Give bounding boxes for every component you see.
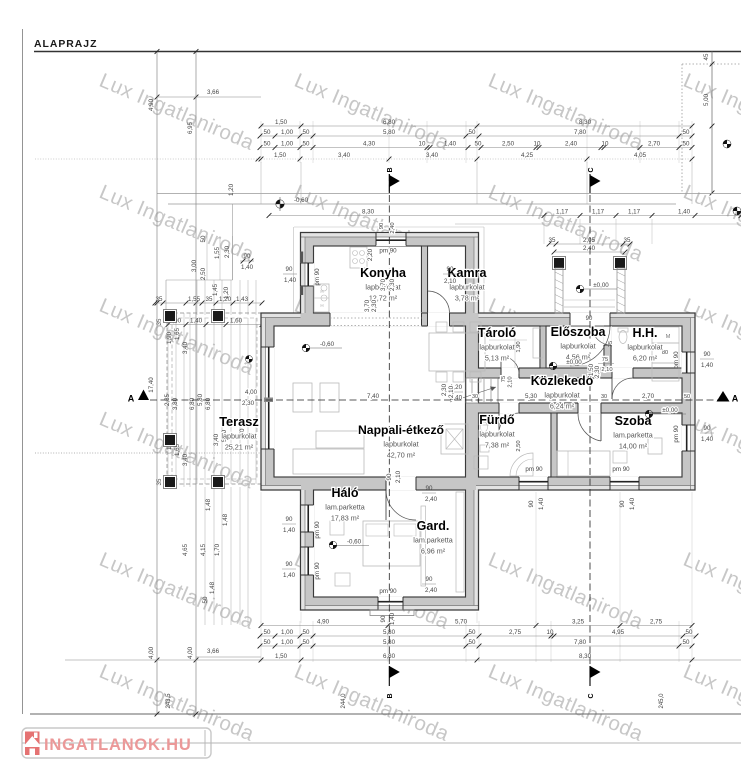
svg-text:50: 50 (683, 141, 690, 148)
svg-text:4,25: 4,25 (521, 152, 534, 159)
svg-text:3,66: 3,66 (207, 648, 220, 655)
svg-text:M: M (666, 334, 671, 340)
svg-text:2,10: 2,10 (601, 367, 612, 373)
svg-text:90: 90 (704, 351, 711, 358)
svg-text:2,75: 2,75 (650, 619, 663, 626)
svg-text:Gard.: Gard. (417, 519, 450, 533)
svg-text:2,40: 2,40 (425, 496, 438, 503)
svg-text:1,17: 1,17 (628, 209, 641, 216)
svg-text:2,30: 2,30 (389, 278, 396, 291)
svg-text:50: 50 (303, 629, 310, 636)
svg-text:50: 50 (684, 394, 690, 400)
svg-text:Előszoba: Előszoba (551, 325, 607, 339)
svg-text:1,50: 1,50 (275, 119, 288, 126)
svg-text:6,95: 6,95 (187, 121, 194, 134)
svg-text:35: 35 (156, 296, 163, 303)
svg-text:pm 90: pm 90 (379, 588, 397, 595)
svg-text:50: 50 (683, 129, 690, 136)
svg-text:-0,60: -0,60 (347, 539, 362, 546)
svg-text:5,80: 5,80 (383, 129, 396, 136)
svg-text:±0,00: ±0,00 (593, 282, 609, 289)
svg-text:1,40: 1,40 (701, 436, 714, 443)
svg-text:lapburkolat: lapburkolat (479, 343, 514, 352)
svg-text:3,66: 3,66 (207, 89, 220, 96)
svg-text:1,40: 1,40 (629, 497, 636, 510)
svg-text:7,80: 7,80 (574, 639, 587, 646)
svg-text:1,40: 1,40 (444, 141, 457, 148)
svg-text:50: 50 (303, 141, 310, 148)
svg-text:245,0: 245,0 (659, 693, 665, 709)
svg-text:±0,00: ±0,00 (566, 359, 582, 366)
svg-text:1,40: 1,40 (284, 277, 297, 284)
svg-text:INGATLANOK.HU: INGATLANOK.HU (44, 736, 192, 754)
svg-text:2,70: 2,70 (642, 393, 655, 400)
svg-text:90: 90 (619, 500, 626, 507)
svg-text:10: 10 (547, 629, 554, 636)
svg-text:Közlekedő: Közlekedő (531, 374, 594, 388)
svg-text:3,80: 3,80 (172, 397, 179, 410)
svg-text:50: 50 (264, 629, 271, 636)
svg-text:90: 90 (379, 223, 385, 229)
svg-text:42,70 m²: 42,70 m² (387, 451, 416, 460)
svg-text:75: 75 (602, 357, 608, 363)
svg-text:2,30: 2,30 (594, 365, 601, 378)
svg-text:Szoba: Szoba (615, 414, 653, 428)
svg-text:1,40: 1,40 (701, 362, 714, 369)
svg-text:35: 35 (156, 318, 163, 325)
svg-text:17,83 m²: 17,83 m² (331, 514, 360, 523)
svg-text:5,70: 5,70 (455, 619, 468, 626)
svg-text:3,78 m²: 3,78 m² (455, 294, 480, 303)
svg-text:pm 90: pm 90 (314, 268, 321, 286)
svg-text:6,80: 6,80 (189, 397, 196, 410)
svg-text:H: H (320, 303, 323, 308)
svg-text:2,30: 2,30 (242, 400, 255, 407)
svg-text:2,30: 2,30 (371, 299, 378, 312)
svg-text:2,40: 2,40 (390, 222, 396, 233)
svg-text:Fürdő: Fürdő (479, 413, 515, 427)
svg-text:90: 90 (286, 516, 293, 523)
svg-text:2,10: 2,10 (448, 385, 455, 398)
svg-text:90: 90 (286, 561, 293, 568)
svg-text:3,40: 3,40 (182, 453, 189, 466)
svg-text:90: 90 (380, 615, 387, 622)
svg-text:lapburkolat: lapburkolat (479, 430, 514, 439)
svg-text:17,40: 17,40 (148, 377, 155, 393)
svg-text:50: 50 (683, 639, 690, 646)
svg-text:H: H (320, 289, 323, 294)
svg-text:80: 80 (662, 350, 668, 356)
svg-text:B: B (387, 167, 394, 172)
svg-text:75: 75 (501, 376, 507, 382)
svg-text:7,40: 7,40 (367, 393, 380, 400)
svg-text:50: 50 (303, 639, 310, 646)
svg-text:1,40: 1,40 (678, 209, 691, 216)
svg-text:Terasz: Terasz (219, 414, 259, 429)
svg-text:1,40: 1,40 (389, 612, 396, 625)
svg-text:4,05: 4,05 (634, 152, 647, 159)
svg-text:25,21 m²: 25,21 m² (225, 443, 254, 452)
svg-text:50: 50 (469, 639, 476, 646)
svg-text:5,13 m²: 5,13 m² (485, 354, 510, 363)
svg-text:35: 35 (206, 296, 213, 303)
svg-text:2,10: 2,10 (508, 376, 514, 387)
svg-text:ALAPRAJZ: ALAPRAJZ (34, 39, 97, 50)
svg-text:50: 50 (202, 596, 209, 603)
svg-text:4,30: 4,30 (363, 141, 376, 148)
svg-text:30: 30 (472, 394, 478, 400)
svg-text:1,48: 1,48 (222, 513, 229, 526)
svg-text:-0,60: -0,60 (320, 341, 335, 348)
svg-text:Háló: Háló (331, 486, 358, 500)
svg-text:1,55: 1,55 (214, 246, 221, 259)
svg-text:2,10: 2,10 (444, 278, 457, 285)
svg-text:1,50: 1,50 (275, 653, 288, 660)
svg-text:50: 50 (200, 235, 207, 242)
svg-text:3,40: 3,40 (182, 341, 189, 354)
svg-text:90: 90 (447, 266, 454, 273)
svg-text:2,75: 2,75 (509, 629, 522, 636)
svg-text:1,00: 1,00 (281, 141, 294, 148)
svg-text:90: 90 (586, 316, 593, 322)
svg-text:3,40: 3,40 (426, 152, 439, 159)
svg-text:7,80: 7,80 (574, 129, 587, 136)
svg-text:45: 45 (703, 53, 710, 60)
svg-text:3,70: 3,70 (364, 299, 371, 312)
svg-text:C: C (588, 167, 595, 172)
svg-text:2,10: 2,10 (395, 470, 402, 483)
svg-text:Nappali-étkező: Nappali-étkező (358, 423, 444, 437)
svg-text:1,00: 1,00 (281, 629, 294, 636)
svg-text:4,65: 4,65 (182, 543, 189, 556)
svg-text:2,70: 2,70 (648, 141, 661, 148)
svg-text:90: 90 (286, 266, 293, 273)
svg-text:H.H.: H.H. (633, 326, 658, 340)
svg-text:50: 50 (264, 639, 271, 646)
svg-text:1,50: 1,50 (274, 152, 287, 159)
svg-text:8,30: 8,30 (579, 119, 592, 126)
svg-text:2,50: 2,50 (516, 440, 522, 451)
svg-text:1,48: 1,48 (205, 498, 212, 511)
svg-text:35: 35 (156, 478, 163, 485)
svg-text:lam.parketta: lam.parketta (613, 431, 653, 440)
svg-text:4,00: 4,00 (187, 646, 194, 659)
svg-text:2,30: 2,30 (224, 245, 231, 258)
svg-text:1,90: 1,90 (516, 341, 522, 352)
svg-text:pm 90: pm 90 (379, 248, 397, 255)
svg-text:35: 35 (624, 237, 631, 244)
svg-text:1,40: 1,40 (190, 318, 203, 325)
svg-text:10: 10 (534, 141, 541, 148)
svg-text:2,05: 2,05 (583, 237, 596, 244)
svg-text:90: 90 (386, 473, 393, 480)
svg-text:14,00 m²: 14,00 m² (619, 442, 648, 451)
svg-text:10: 10 (419, 141, 426, 148)
svg-text:pm 90: pm 90 (612, 466, 630, 473)
svg-text:3,40: 3,40 (213, 433, 220, 446)
svg-text:1,65: 1,65 (174, 327, 181, 340)
svg-text:-0,60: -0,60 (294, 197, 309, 204)
svg-text:1,17: 1,17 (556, 209, 569, 216)
svg-text:8,30: 8,30 (362, 209, 375, 216)
svg-text:4,95: 4,95 (612, 629, 625, 636)
svg-text:6,80: 6,80 (205, 397, 212, 410)
svg-text:B: B (387, 693, 394, 698)
svg-text:3,70: 3,70 (380, 278, 387, 291)
svg-text:pm 90: pm 90 (673, 425, 680, 443)
svg-text:1,20: 1,20 (223, 286, 230, 299)
svg-text:lam.parketta: lam.parketta (413, 536, 453, 545)
svg-text:2,40: 2,40 (583, 245, 596, 252)
svg-text:6,20 m²: 6,20 m² (633, 354, 658, 363)
svg-text:4,00: 4,00 (148, 646, 155, 659)
svg-text:1,00: 1,00 (281, 639, 294, 646)
svg-text:2,50: 2,50 (502, 141, 515, 148)
svg-text:75: 75 (608, 341, 614, 347)
svg-text:1,40: 1,40 (283, 572, 296, 579)
svg-text:4,90: 4,90 (148, 98, 155, 111)
svg-text:Konyha: Konyha (360, 266, 407, 280)
svg-text:1,70: 1,70 (214, 543, 221, 556)
svg-text:10: 10 (602, 141, 609, 148)
svg-text:4,00: 4,00 (245, 389, 258, 396)
svg-text:6,80: 6,80 (383, 119, 396, 126)
svg-text:4,15: 4,15 (200, 543, 207, 556)
svg-text:2,40: 2,40 (425, 587, 438, 594)
svg-text:3,25: 3,25 (572, 619, 585, 626)
svg-text:C: C (588, 693, 595, 698)
svg-text:90: 90 (244, 253, 251, 260)
svg-text:244,0: 244,0 (341, 693, 347, 709)
svg-text:1,60: 1,60 (230, 318, 243, 325)
svg-text:±0,00: ±0,00 (662, 407, 678, 414)
svg-text:50: 50 (686, 629, 693, 636)
svg-text:1,55: 1,55 (188, 296, 201, 303)
svg-text:Tároló: Tároló (478, 326, 517, 340)
svg-text:2,20: 2,20 (367, 248, 374, 261)
svg-text:2,40: 2,40 (565, 141, 578, 148)
svg-text:pm 90: pm 90 (525, 466, 543, 473)
svg-text:lapburkolat: lapburkolat (627, 343, 662, 352)
svg-text:50: 50 (475, 141, 482, 148)
svg-text:1,43: 1,43 (236, 296, 249, 303)
svg-text:2,50: 2,50 (200, 267, 207, 280)
svg-text:1,40: 1,40 (538, 497, 545, 510)
svg-text:1,00: 1,00 (281, 129, 294, 136)
svg-text:4,90: 4,90 (317, 619, 330, 626)
svg-text:1,40: 1,40 (241, 264, 254, 271)
svg-text:1,48: 1,48 (209, 581, 216, 594)
svg-text:7,38 m²: 7,38 m² (485, 441, 510, 450)
svg-text:5,00: 5,00 (703, 93, 710, 106)
svg-text:2,30: 2,30 (441, 383, 448, 396)
svg-text:lapburkolat: lapburkolat (383, 440, 418, 449)
svg-text:lam.parketta: lam.parketta (325, 503, 365, 512)
svg-text:90: 90 (704, 425, 711, 432)
svg-text:50: 50 (264, 129, 271, 136)
svg-text:243,5: 243,5 (166, 693, 172, 709)
svg-text:35: 35 (549, 237, 556, 244)
svg-text:90: 90 (528, 500, 535, 507)
svg-text:pm 90: pm 90 (673, 351, 680, 369)
svg-text:3,00: 3,00 (191, 259, 198, 272)
svg-text:90: 90 (426, 485, 433, 492)
svg-text:3,40: 3,40 (338, 152, 351, 159)
svg-text:50: 50 (303, 129, 310, 136)
svg-text:pm 90: pm 90 (314, 562, 321, 580)
svg-text:1,45: 1,45 (212, 283, 219, 296)
svg-text:lapburkolat: lapburkolat (544, 391, 579, 400)
svg-text:1,20: 1,20 (228, 183, 235, 196)
svg-text:A: A (128, 394, 135, 404)
svg-text:A: A (732, 394, 739, 404)
svg-text:30: 30 (601, 394, 607, 400)
svg-text:6,24 m²: 6,24 m² (550, 402, 575, 411)
svg-text:lapburkolat: lapburkolat (560, 342, 595, 351)
svg-text:50: 50 (469, 629, 476, 636)
svg-text:1,17: 1,17 (592, 209, 605, 216)
svg-text:lapburkolat: lapburkolat (221, 432, 256, 441)
svg-text:90: 90 (426, 576, 433, 583)
svg-text:pm 90: pm 90 (314, 521, 321, 539)
svg-text:1,40: 1,40 (283, 527, 296, 534)
svg-text:50: 50 (469, 129, 476, 136)
svg-text:50: 50 (264, 141, 271, 148)
svg-text:5,30: 5,30 (525, 393, 538, 400)
svg-text:6,96 m²: 6,96 m² (421, 547, 446, 556)
